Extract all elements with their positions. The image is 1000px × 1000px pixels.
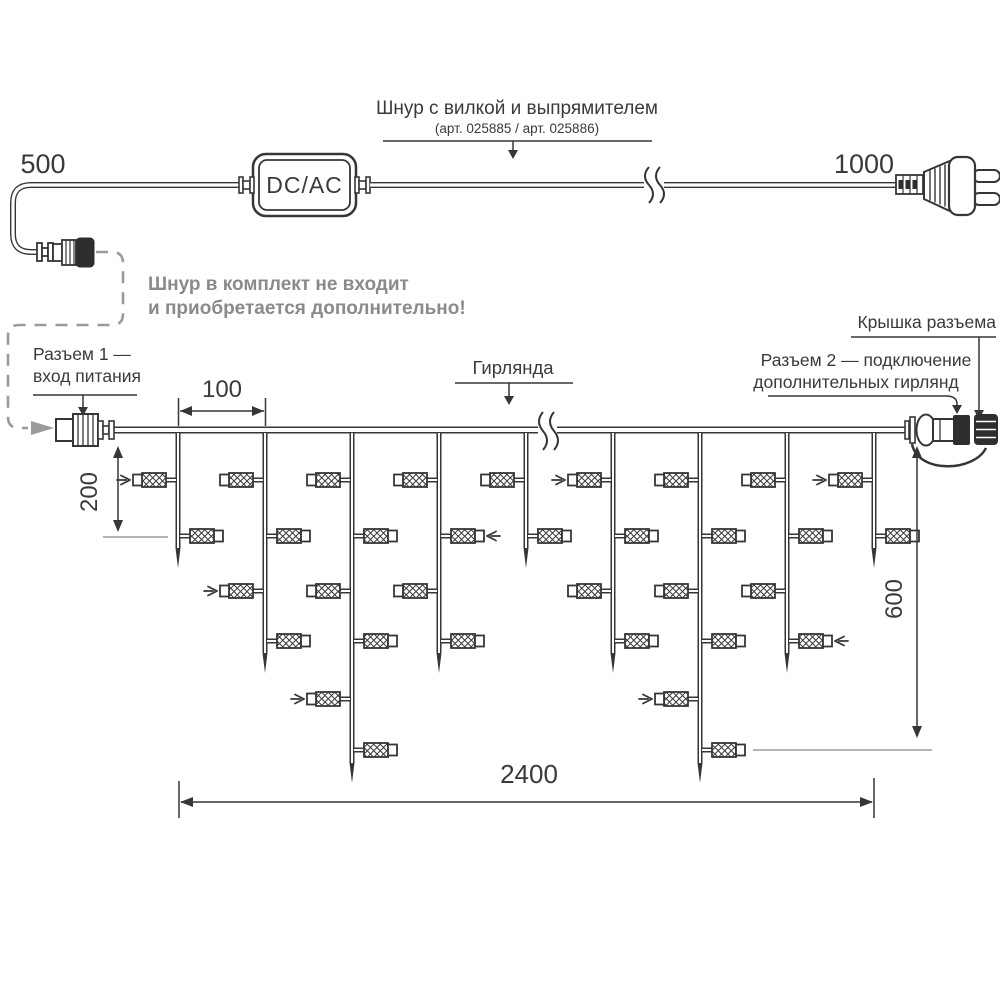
lamp-cap [307, 475, 316, 486]
cord-callout-arrow [508, 150, 518, 159]
converter-outlet-coupling [355, 177, 370, 193]
drop-tip [698, 763, 703, 783]
dim-100-arrow-right [252, 406, 264, 416]
lamp-body [190, 529, 214, 543]
mains-plug [896, 157, 1000, 215]
diagram-page: Шнур с вилкой и выпрямителем (арт. 02588… [0, 0, 1000, 1000]
lamp-cap [220, 475, 229, 486]
lamp-cap [307, 586, 316, 597]
lamp-cap [220, 586, 229, 597]
lamp-direction-arrow [487, 532, 500, 541]
dc-output-connector [37, 238, 94, 267]
lamp-body [664, 692, 688, 706]
lamp-body [751, 473, 775, 487]
lamp-cap [568, 586, 577, 597]
lamp-cap [562, 531, 571, 542]
lamp-cap [823, 636, 832, 647]
lamp-cap [301, 531, 310, 542]
lamp-body [664, 473, 688, 487]
lamp-body [664, 584, 688, 598]
lamp-body [316, 473, 340, 487]
lamp-body [364, 529, 388, 543]
lamp-cap [394, 475, 403, 486]
lamp-cap [301, 636, 310, 647]
connector2-tether [912, 444, 986, 466]
connector2-label-line2: дополнительных гирлянд [753, 372, 958, 392]
dim-2400-label: 2400 [500, 759, 558, 789]
lamp-body [751, 584, 775, 598]
dc-ac-label: DC/AC [266, 172, 343, 198]
connector2-label-line1: Разъем 2 — подключение [761, 350, 972, 370]
lamp-direction-arrow [835, 637, 848, 646]
lamp-body [316, 692, 340, 706]
lamp-body [229, 584, 253, 598]
lamp-cap [649, 531, 658, 542]
lamp-body [229, 473, 253, 487]
lamp-cap [829, 475, 838, 486]
cord-subtitle: (арт. 025885 / арт. 025886) [435, 121, 599, 136]
lamp-cap [388, 531, 397, 542]
lamp-body [712, 743, 736, 757]
lamp-body [838, 473, 862, 487]
dashed-connection-path [8, 252, 123, 428]
cord-left-core [13, 185, 253, 252]
lamp-cap [655, 694, 664, 705]
lamp-direction-arrow [291, 695, 304, 704]
lamp-body [316, 584, 340, 598]
lamp-direction-arrow [117, 476, 130, 485]
lamp-body [403, 473, 427, 487]
cap-label: Крышка разъема [857, 312, 996, 332]
lamp-cap [736, 745, 745, 756]
garland-section: Разъем 1 — вход питания Гирлянда Крышка … [33, 312, 998, 818]
dc-ac-converter: DC/AC [239, 154, 370, 216]
lamp-direction-arrow [639, 695, 652, 704]
lamp-cap [568, 475, 577, 486]
dim-100-arrow-left [180, 406, 192, 416]
lamp-direction-arrow [204, 587, 217, 596]
lamp-cap [655, 586, 664, 597]
garland-arrow [504, 396, 514, 405]
dim-200-arrow-top [113, 446, 123, 458]
lamp-cap [736, 531, 745, 542]
lamp-body [490, 473, 514, 487]
drop-tip [524, 548, 529, 568]
lamp-direction-arrow [813, 476, 826, 485]
lamp-cap [388, 745, 397, 756]
lamp-body [277, 634, 301, 648]
lamp-cap [475, 531, 484, 542]
lamp-body [625, 529, 649, 543]
connector1-label-line2: вход питания [33, 366, 141, 386]
lamp-body [712, 634, 736, 648]
dim-600-label: 600 [881, 579, 908, 619]
lamp-body [451, 634, 475, 648]
lamp-body [277, 529, 301, 543]
dim-200-arrow-bottom [113, 520, 123, 532]
lamp-body [799, 529, 823, 543]
connector-cap [974, 414, 998, 445]
lamp-cap [388, 636, 397, 647]
lamp-body [451, 529, 475, 543]
drop-tip [611, 653, 616, 673]
lamp-cap [133, 475, 142, 486]
cord-title: Шнур с вилкой и выпрямителем [376, 98, 658, 119]
lamp-body [364, 743, 388, 757]
drop-tip [872, 548, 877, 568]
drop-tip [785, 653, 790, 673]
drop-tip [176, 548, 181, 568]
dim-500-label: 500 [20, 149, 65, 179]
lamp-cap [214, 531, 223, 542]
connector2-leader [768, 396, 957, 405]
dim-2400-arrow-right [860, 797, 873, 807]
lamp-body [577, 473, 601, 487]
lamp-body [538, 529, 562, 543]
connector2 [905, 414, 998, 466]
dashed-path-arrow [31, 421, 54, 435]
cord-left [13, 185, 253, 252]
dim-2400-arrow-left [180, 797, 193, 807]
converter-inlet-coupling [239, 177, 254, 193]
lamp-cap [742, 586, 751, 597]
lamp-cap [823, 531, 832, 542]
lamp-body [712, 529, 736, 543]
lamp-cap [481, 475, 490, 486]
drop-tip [350, 763, 355, 783]
drop-tip [263, 653, 268, 673]
garland-drops [117, 432, 919, 783]
lamp-cap [736, 636, 745, 647]
garland-schematic: Шнур с вилкой и выпрямителем (арт. 02588… [0, 0, 1000, 1000]
garland-label: Гирлянда [472, 357, 554, 378]
dim-100-label: 100 [202, 376, 242, 403]
dim-1000-label: 1000 [834, 149, 894, 179]
connector2-arrow [952, 405, 962, 414]
note-line2: и приобретается дополнительно! [148, 298, 466, 319]
lamp-body [799, 634, 823, 648]
drop-tip [437, 653, 442, 673]
lamp-cap [742, 475, 751, 486]
note-line1: Шнур в комплект не входит [148, 274, 409, 295]
lamp-body [364, 634, 388, 648]
lamp-body [577, 584, 601, 598]
lamp-body [886, 529, 910, 543]
lamp-body [403, 584, 427, 598]
lamp-cap [475, 636, 484, 647]
connector1 [56, 414, 114, 446]
lamp-body [142, 473, 166, 487]
dim-600-arrow-bottom [912, 726, 922, 738]
lamp-direction-arrow [552, 476, 565, 485]
connector1-label-line1: Разъем 1 — [33, 344, 131, 364]
garland-break-mark [539, 412, 558, 450]
lamp-body [625, 634, 649, 648]
dim-200-label: 200 [76, 472, 103, 512]
lamp-cap [655, 475, 664, 486]
lamp-cap [394, 586, 403, 597]
lamp-cap [307, 694, 316, 705]
lamp-cap [649, 636, 658, 647]
